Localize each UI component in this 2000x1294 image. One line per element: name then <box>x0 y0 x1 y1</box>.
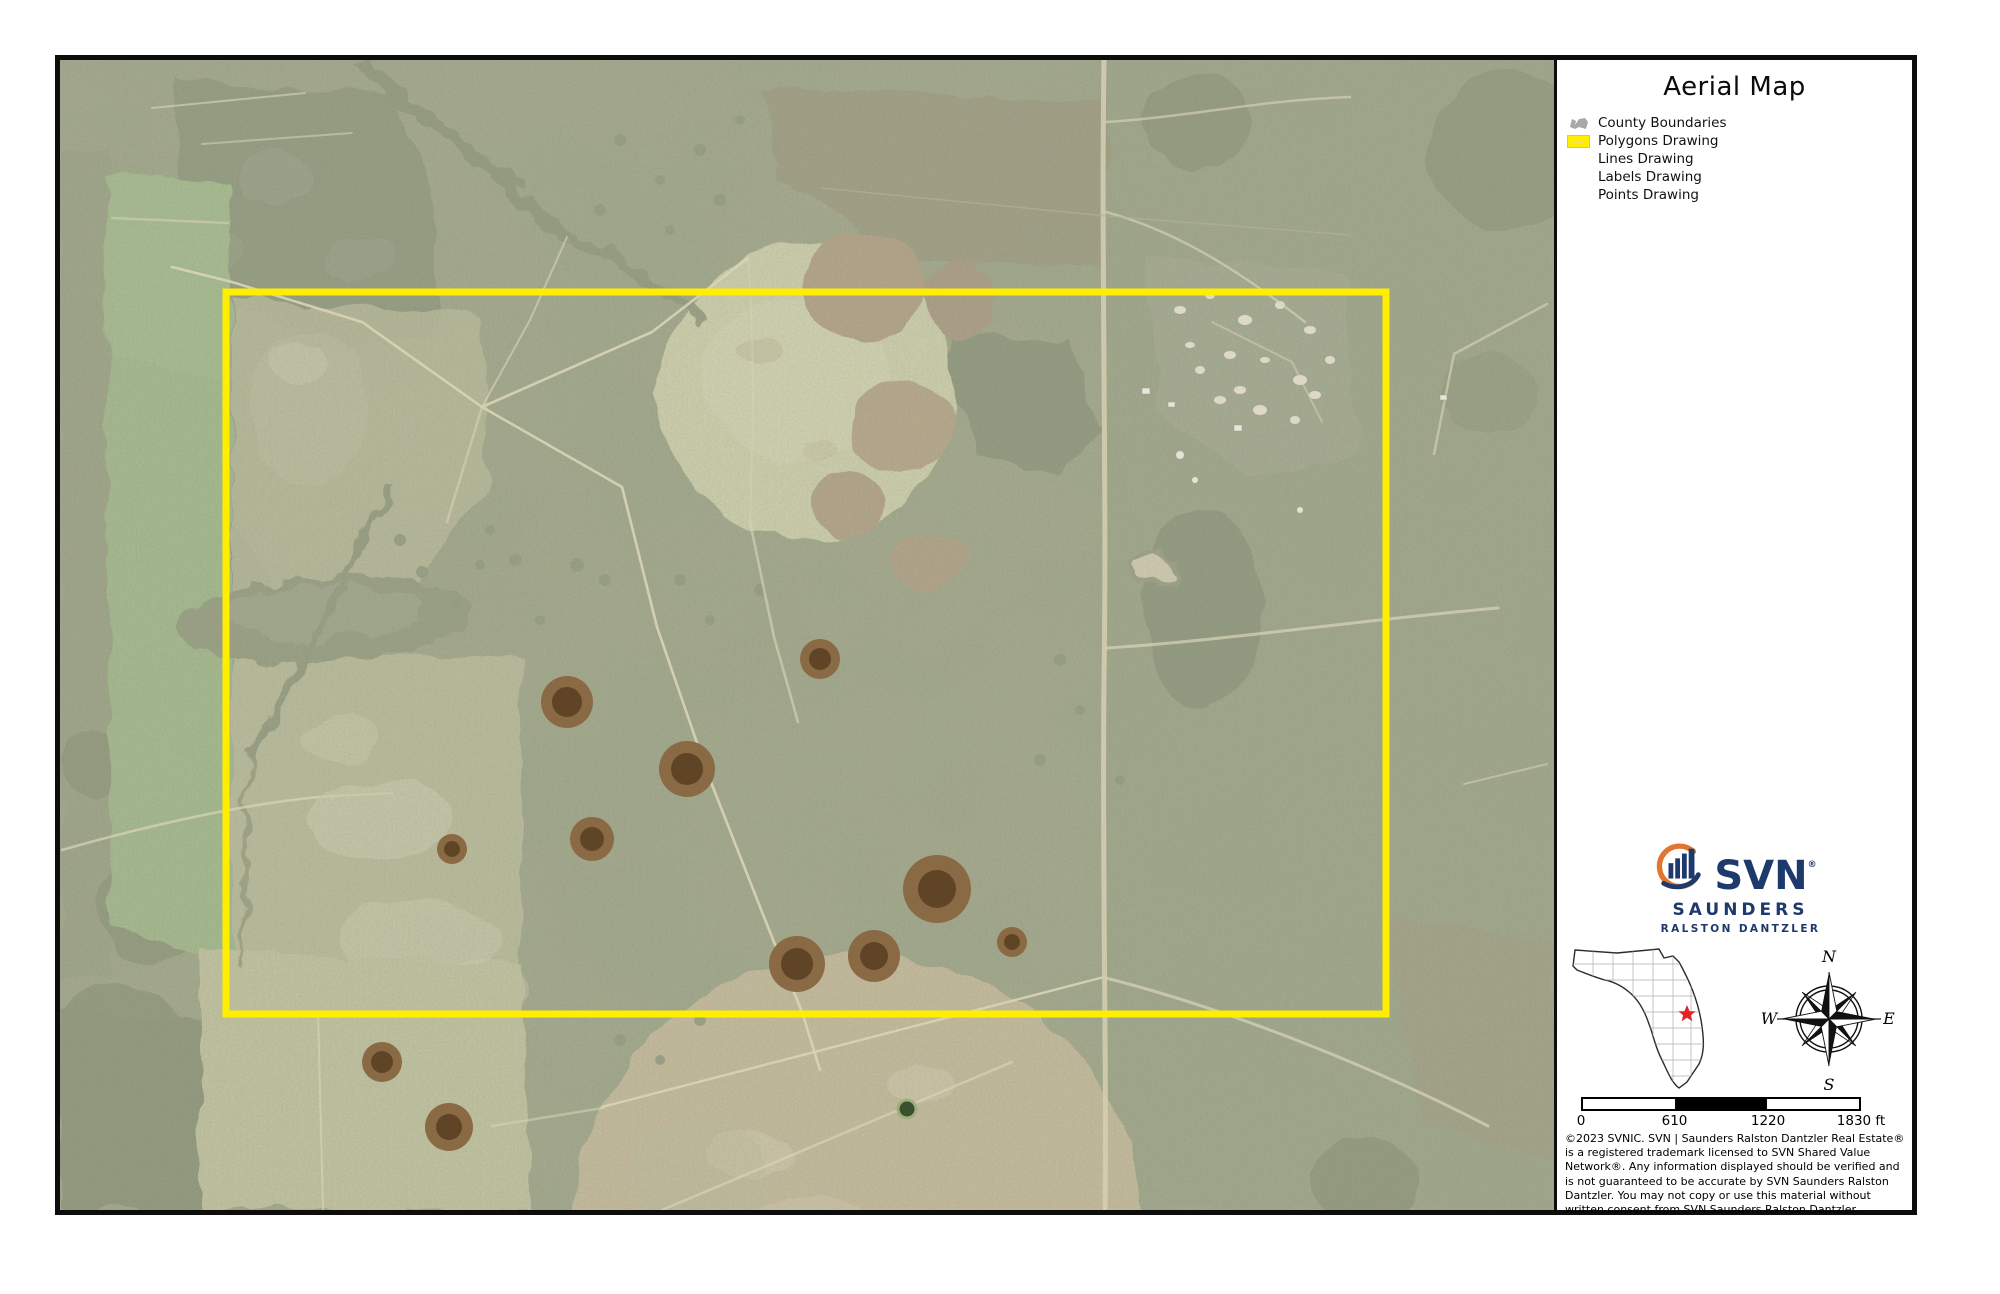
compass-label-w: W <box>1761 1009 1779 1028</box>
legend-item-lines-drawing[interactable]: Lines Drawing <box>1567 150 1727 168</box>
legend-item-points-drawing[interactable]: Points Drawing <box>1567 186 1727 204</box>
polygons-drawing-swatch-icon <box>1567 134 1593 149</box>
legend-item-labels-drawing[interactable]: Labels Drawing <box>1567 168 1727 186</box>
svn-logo-icon <box>1652 842 1710 896</box>
svn-logo: SVN® SAUNDERS RALSTON DANTZLER <box>1557 842 1912 935</box>
compass-label-e: E <box>1882 1009 1895 1028</box>
scale-bar-graphic <box>1581 1097 1861 1111</box>
logo-ralston-dantzler-text: RALSTON DANTZLER <box>1557 923 1912 935</box>
county-boundaries-swatch-icon <box>1567 116 1593 131</box>
florida-inset-map <box>1565 936 1751 1094</box>
points-drawing-swatch-icon <box>1567 188 1593 203</box>
scale-tick-1830: 1830 ft <box>1837 1113 1885 1129</box>
map-title: Aerial Map <box>1557 72 1912 102</box>
compass-rose: N S W E <box>1761 944 1897 1099</box>
legend-item-polygons-drawing[interactable]: Polygons Drawing <box>1567 132 1727 150</box>
scale-tick-0: 0 <box>1577 1113 1586 1129</box>
registered-mark: ® <box>1808 860 1817 870</box>
legend: County Boundaries Polygons Drawing Lines… <box>1567 114 1727 204</box>
legend-label: Lines Drawing <box>1598 151 1694 167</box>
legend-label: Labels Drawing <box>1598 169 1702 185</box>
compass-label-s: S <box>1824 1075 1835 1094</box>
compass-label-n: N <box>1821 947 1837 966</box>
scale-tick-610: 610 <box>1662 1113 1688 1129</box>
aerial-map-canvas[interactable] <box>60 60 1554 1210</box>
svn-logo-text: SVN <box>1714 856 1807 896</box>
scale-tick-1220: 1220 <box>1751 1113 1785 1129</box>
disclaimer-text: ©2023 SVNIC. SVN | Saunders Ralston Dant… <box>1565 1132 1910 1217</box>
legend-item-county-boundaries[interactable]: County Boundaries <box>1567 114 1727 132</box>
labels-drawing-swatch-icon <box>1567 170 1593 185</box>
scale-bar: 0 610 1220 1830 ft <box>1581 1097 1861 1129</box>
legend-label: Polygons Drawing <box>1598 133 1719 149</box>
legend-panel: Aerial Map County Boundaries Polygons Dr… <box>1554 60 1912 1210</box>
aerial-imagery <box>60 60 1554 1210</box>
legend-label: County Boundaries <box>1598 115 1727 131</box>
lines-drawing-swatch-icon <box>1567 152 1593 167</box>
map-frame: Aerial Map County Boundaries Polygons Dr… <box>55 55 1917 1215</box>
logo-saunders-text: SAUNDERS <box>1557 900 1912 920</box>
legend-label: Points Drawing <box>1598 187 1699 203</box>
